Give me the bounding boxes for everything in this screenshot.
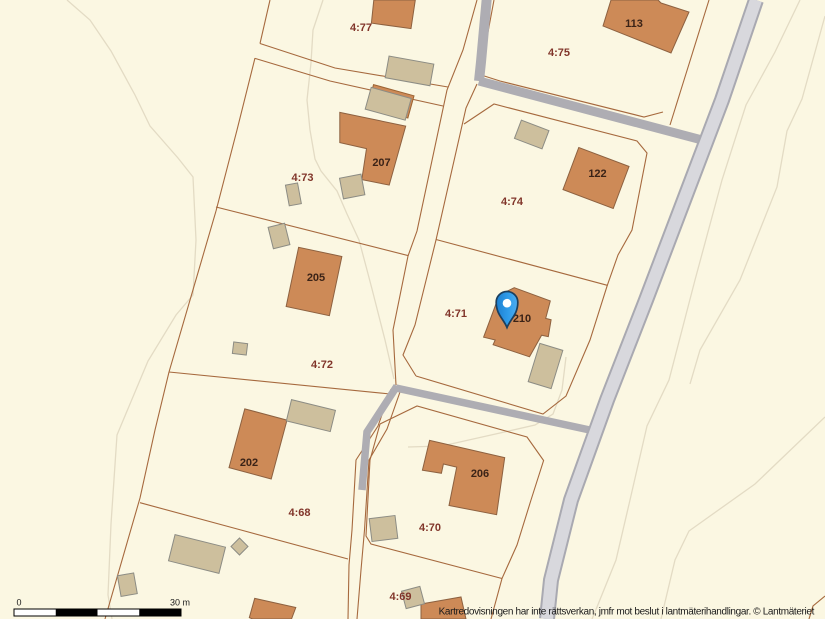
svg-text:0: 0 bbox=[16, 598, 21, 608]
svg-text:4:74: 4:74 bbox=[501, 196, 524, 208]
svg-text:122: 122 bbox=[588, 168, 606, 180]
svg-text:4:73: 4:73 bbox=[291, 172, 313, 184]
svg-text:207: 207 bbox=[372, 157, 390, 169]
svg-text:4:69: 4:69 bbox=[389, 591, 411, 603]
svg-text:4:77: 4:77 bbox=[350, 22, 372, 34]
svg-text:4:75: 4:75 bbox=[548, 47, 570, 59]
svg-text:210: 210 bbox=[513, 313, 531, 325]
svg-text:30 m: 30 m bbox=[170, 598, 190, 608]
svg-text:202: 202 bbox=[240, 457, 258, 469]
svg-text:Kartredovisningen har inte rät: Kartredovisningen har inte rättsverkan, … bbox=[439, 607, 815, 618]
svg-text:4:71: 4:71 bbox=[445, 308, 467, 320]
svg-text:113: 113 bbox=[625, 18, 643, 30]
svg-text:4:68: 4:68 bbox=[288, 507, 310, 519]
svg-text:4:72: 4:72 bbox=[311, 359, 333, 371]
svg-text:206: 206 bbox=[471, 468, 489, 480]
svg-text:4:70: 4:70 bbox=[419, 522, 441, 534]
svg-text:205: 205 bbox=[307, 272, 325, 284]
